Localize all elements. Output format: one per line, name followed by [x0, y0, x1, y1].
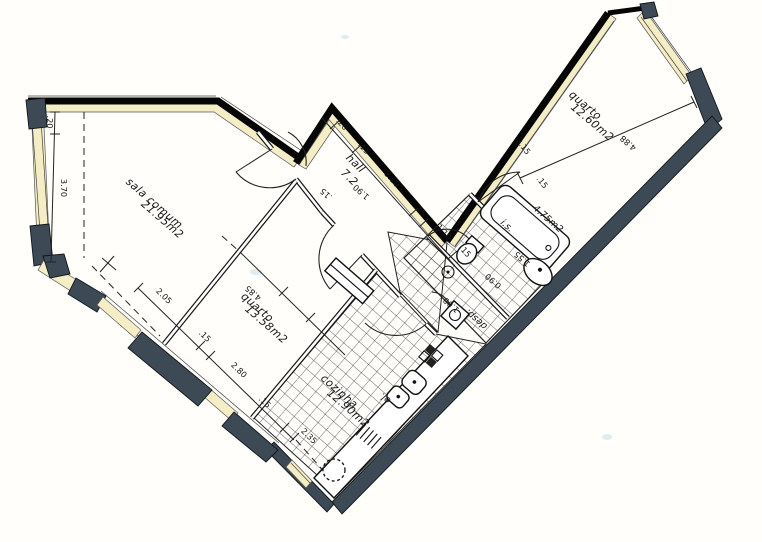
dim-wall-a: .15	[197, 328, 213, 344]
dim-left-width: 3.70	[59, 179, 69, 197]
sala-bedroom1-wall	[164, 181, 296, 344]
dim-quarto2-depth: 4.88	[618, 134, 638, 154]
terrace-boundary	[28, 96, 305, 167]
bay-corner-wall	[38, 254, 106, 312]
floor-plan-canvas: sala comum 21.95m2 quarto 13.58m2 cozinh…	[0, 0, 762, 542]
dim-left-offset: .20	[45, 115, 55, 128]
dim-quarto1-front: 2.80	[229, 360, 249, 380]
dim-hall-side: .15	[318, 186, 334, 202]
hall-boundary-wall	[296, 108, 447, 248]
dim-quarto2-wall: .15	[534, 174, 550, 190]
dim-sala-front: 2.05	[154, 286, 174, 306]
survey-cross-mark	[100, 256, 116, 272]
bedroom2-window-wall	[637, 2, 722, 131]
floor-plan-page: sala comum 21.95m2 quarto 13.58m2 cozinh…	[0, 0, 762, 542]
